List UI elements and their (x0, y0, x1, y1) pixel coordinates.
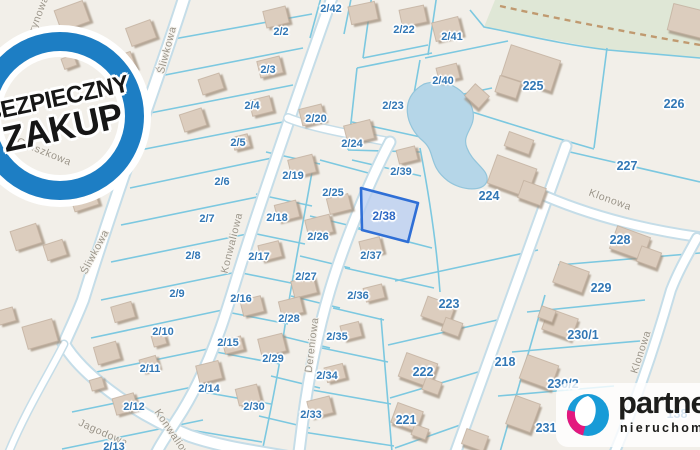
parcel-label-2-26: 2/26 (307, 231, 328, 243)
parcel-label-231: 231 (536, 421, 557, 435)
agency-logo: partner nieruchomości (556, 383, 700, 447)
parcel-label-222: 222 (413, 365, 434, 379)
parcel-label-2-2: 2/2 (273, 26, 288, 38)
parcel-label-226: 226 (664, 97, 685, 111)
parcel-label-2-23: 2/23 (382, 100, 403, 112)
parcel-label-2-10: 2/10 (152, 326, 173, 338)
parcel-label-2-35: 2/35 (326, 331, 347, 343)
parcel-label-225: 225 (523, 79, 544, 93)
parcel-label-2-8: 2/8 (185, 250, 200, 262)
parcel-label-2-16: 2/16 (230, 293, 251, 305)
safe-purchase-badge: BEZPIECZNY ZAKUP (0, 32, 144, 200)
parcel-label-2-40: 2/40 (432, 75, 453, 87)
parcel-label-2-13: 2/13 (103, 441, 124, 450)
parcel-label-2-22: 2/22 (393, 24, 414, 36)
parcel-label-2-19: 2/19 (282, 170, 303, 182)
parcel-label-2-42: 2/42 (320, 3, 341, 15)
parcel-label-2-12: 2/12 (123, 401, 144, 413)
parcel-label-227: 227 (617, 159, 638, 173)
parcel-label-2-24: 2/24 (341, 138, 362, 150)
parcel-label-2-6: 2/6 (214, 176, 229, 188)
parcel-label-2-15: 2/15 (217, 337, 238, 349)
parcel-label-2-14: 2/14 (198, 383, 219, 395)
parcel-label-2-41: 2/41 (441, 31, 462, 43)
parcel-label-2-28: 2/28 (278, 313, 299, 325)
parcel-label-2-17: 2/17 (248, 251, 269, 263)
parcel-label-224: 224 (479, 189, 500, 203)
parcel-label-2-18: 2/18 (266, 212, 287, 224)
parcel-label-2-3: 2/3 (260, 64, 275, 76)
parcel-label-2-30: 2/30 (243, 401, 264, 413)
parcel-label-2-27: 2/27 (295, 271, 316, 283)
parcel-label-2-9: 2/9 (169, 288, 184, 300)
parcel-label-2-11: 2/11 (140, 363, 161, 375)
parcel-label-223: 223 (439, 297, 460, 311)
parcel-label-218: 218 (495, 355, 516, 369)
parcel-label-2-5: 2/5 (230, 137, 245, 149)
partner-logo-icon (565, 392, 611, 438)
logo-brand-text: partner (618, 385, 700, 421)
parcel-label-229: 229 (591, 281, 612, 295)
parcel-label-2-29: 2/29 (262, 353, 283, 365)
parcel-label-2-33: 2/33 (300, 409, 321, 421)
parcel-label-2-7: 2/7 (199, 213, 214, 225)
logo-subtitle-text: nieruchomości (620, 421, 700, 435)
parcel-label-2-20: 2/20 (305, 113, 326, 125)
parcel-label-2-37: 2/37 (360, 250, 381, 262)
parcel-label-2-25: 2/25 (322, 187, 343, 199)
parcel-label-221: 221 (396, 413, 417, 427)
map-canvas[interactable]: 2/422/222/412/22/32/402/232/42/202/52/24… (0, 0, 700, 450)
parcel-label-228: 228 (610, 233, 631, 247)
parcel-label-2-36: 2/36 (347, 290, 368, 302)
parcel-label-230-1: 230/1 (567, 328, 598, 342)
parcel-label-2-38: 2/38 (372, 209, 395, 223)
parcel-label-2-34: 2/34 (316, 370, 337, 382)
parcel-label-2-4: 2/4 (244, 100, 259, 112)
badge-text: BEZPIECZNY ZAKUP (0, 16, 160, 215)
parcel-label-2-39: 2/39 (390, 166, 411, 178)
